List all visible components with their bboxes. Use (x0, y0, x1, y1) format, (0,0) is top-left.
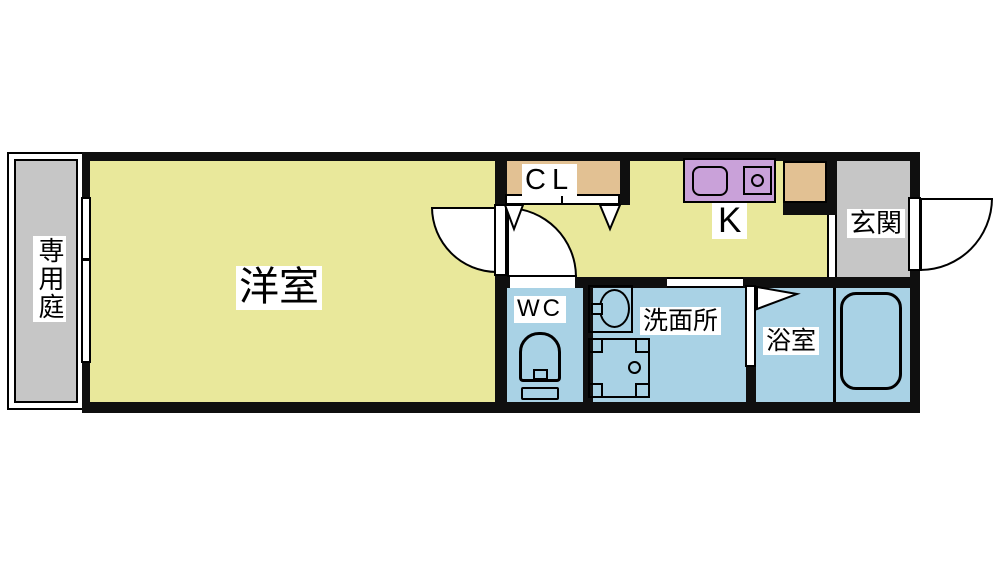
garden-window-sash-tick (81, 258, 91, 261)
washer-corner-bl (588, 383, 603, 398)
bathtub-icon (840, 292, 902, 390)
kitchen-label: K (712, 203, 747, 239)
washbasin-icon (599, 289, 630, 328)
wall-kitchen-entrance-horizontal (783, 203, 837, 215)
washer-corner-tr (635, 338, 650, 353)
entrance-door-leaf (908, 197, 921, 271)
garden-label: 専用庭 (33, 236, 66, 322)
washer-corner-tl (588, 338, 603, 353)
washroom-opening (667, 277, 743, 288)
garden-window-icon (81, 197, 91, 363)
toilet-seat-notch (533, 369, 548, 380)
entrance-label: 玄関 (847, 209, 905, 238)
washer-corner-br (635, 383, 650, 398)
washer-dial-icon (628, 361, 641, 374)
floorplan-canvas: 専用庭 洋室 CL K 玄関 WC 洗面所 浴室 (0, 0, 1000, 562)
toilet-tank (521, 387, 559, 400)
entrance-door-swing (920, 198, 993, 271)
bathroom-door-strip (745, 285, 756, 367)
entrance-step-strip (827, 215, 837, 277)
wall-closet-right (620, 152, 630, 205)
wall-left-lower (82, 363, 90, 413)
washroom-label: 洗面所 (640, 307, 721, 335)
western-room-label: 洋室 (236, 266, 322, 310)
refrigerator-space (783, 161, 827, 203)
wall-right-upper (910, 152, 920, 198)
toilet-label: WC (514, 296, 566, 323)
kitchen-sink-icon (692, 166, 728, 196)
wall-room-hall-lower (495, 275, 507, 402)
wall-right-lower (910, 270, 920, 413)
stove-burner-icon (751, 174, 764, 187)
washing-machine-icon (588, 338, 650, 398)
wall-wet-segment-1 (495, 277, 510, 288)
wall-washroom-bathroom-lower (746, 367, 756, 402)
bathroom-label: 浴室 (763, 327, 819, 355)
room-door-leaf (494, 204, 507, 276)
wc-doorway-gap (510, 277, 575, 288)
closet-label: CL (522, 164, 577, 196)
washbasin-faucet-icon (591, 303, 603, 315)
bathtub-surround-line (833, 288, 836, 402)
wall-left-upper (82, 152, 90, 197)
wall-wet-segment-3 (743, 277, 920, 288)
wall-bottom (82, 402, 920, 413)
wall-top (82, 152, 920, 161)
